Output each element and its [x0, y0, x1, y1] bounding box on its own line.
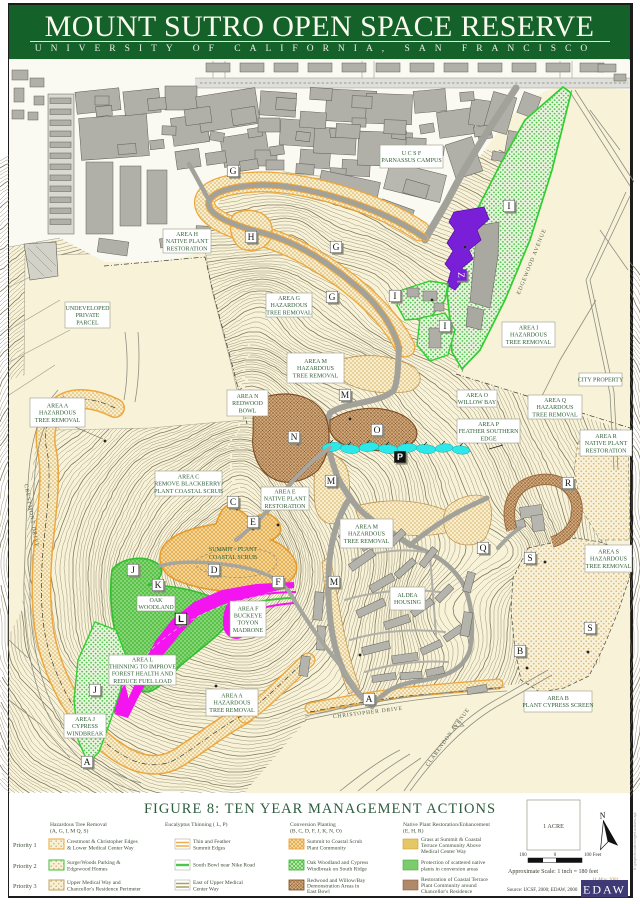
- svg-text:Protection of scattered native: Protection of scattered native: [421, 859, 486, 866]
- svg-text:AREA F: AREA F: [238, 606, 260, 612]
- svg-text:South Bowl near Nike Road: South Bowl near Nike Road: [193, 863, 255, 869]
- svg-text:BUCKEYE: BUCKEYE: [234, 614, 263, 620]
- svg-text:Z: Z: [456, 272, 466, 278]
- svg-text:HAZARDOUS: HAZARDOUS: [39, 411, 76, 417]
- svg-text:Upper Medical Way and: Upper Medical Way and: [67, 880, 121, 886]
- svg-text:HAZARDOUS: HAZARDOUS: [348, 532, 385, 538]
- svg-text:Restoration of Coastal Terrace: Restoration of Coastal Terrace: [421, 876, 488, 883]
- svg-text:Surge/Woods Parking &: Surge/Woods Parking &: [67, 860, 121, 866]
- svg-text:M: M: [327, 477, 336, 487]
- svg-text:(A, G, I, M Q, S): (A, G, I, M Q, S): [50, 828, 89, 835]
- svg-text:COASTAL SCRUB: COASTAL SCRUB: [209, 555, 257, 561]
- svg-text:S: S: [527, 554, 532, 564]
- svg-text:AREA P: AREA P: [478, 422, 500, 428]
- svg-text:Edgewood Homes: Edgewood Homes: [67, 867, 107, 873]
- svg-text:U C S F: U C S F: [402, 151, 422, 157]
- svg-text:AREA L: AREA L: [132, 657, 154, 663]
- svg-text:M: M: [341, 391, 350, 401]
- svg-text:AREA Q: AREA Q: [544, 398, 567, 404]
- svg-text:ALDEA: ALDEA: [397, 593, 418, 599]
- svg-text:REDWOOD: REDWOOD: [232, 401, 263, 407]
- svg-text:HAZARDOUS: HAZARDOUS: [297, 366, 334, 372]
- svg-text:FOREST HEALTH AND: FOREST HEALTH AND: [112, 672, 174, 678]
- svg-text:& Lower Medical Center Way: & Lower Medical Center Way: [67, 846, 134, 852]
- svg-text:N: N: [291, 433, 298, 443]
- svg-text:SUMMIT - PLANT: SUMMIT - PLANT: [209, 547, 258, 553]
- svg-text:Hazardous Tree Removal: Hazardous Tree Removal: [50, 822, 107, 828]
- svg-text:REMOVE BLACKBERRY/: REMOVE BLACKBERRY/: [154, 482, 223, 488]
- svg-text:AREA M: AREA M: [304, 359, 328, 365]
- svg-text:100: 100: [519, 853, 527, 858]
- svg-text:TREE REMOVAL: TREE REMOVAL: [532, 412, 578, 418]
- svg-text:plants in conversion areas: plants in conversion areas: [421, 867, 478, 873]
- svg-text:Plant Community: Plant Community: [307, 846, 346, 852]
- svg-text:Priority 3: Priority 3: [13, 883, 37, 890]
- svg-text:Native Plant Restoration/Enhan: Native Plant Restoration/Enhancement: [403, 822, 490, 828]
- svg-text:HOUSING: HOUSING: [394, 600, 422, 606]
- svg-text:Priority 1: Priority 1: [13, 842, 37, 849]
- svg-text:Thin and Feather: Thin and Feather: [193, 839, 231, 845]
- svg-text:East of Upper Medical: East of Upper Medical: [193, 879, 243, 886]
- svg-text:EDGE: EDGE: [481, 436, 497, 442]
- svg-text:AREA S: AREA S: [598, 549, 619, 555]
- svg-text:S: S: [587, 624, 592, 634]
- svg-text:Crestmont & Christopher Edges: Crestmont & Christopher Edges: [67, 839, 138, 845]
- svg-text:NATIVE PLANT: NATIVE PLANT: [166, 239, 209, 245]
- svg-text:NATIVE PLANT: NATIVE PLANT: [264, 497, 307, 503]
- svg-text:Eucalyptus Thinning ( L, P): Eucalyptus Thinning ( L, P): [165, 821, 228, 828]
- svg-text:Oak Woodland and Cypress: Oak Woodland and Cypress: [307, 860, 368, 866]
- svg-text:I: I: [443, 322, 446, 332]
- svg-text:TREE REMOVAL: TREE REMOVAL: [293, 373, 339, 379]
- svg-text:G: G: [329, 293, 336, 303]
- svg-text:F: F: [275, 578, 280, 588]
- svg-text:Conversion Planting: Conversion Planting: [290, 822, 336, 828]
- svg-text:AREA G: AREA G: [278, 296, 301, 302]
- svg-text:O: O: [374, 426, 381, 436]
- svg-text:OAK: OAK: [150, 598, 164, 604]
- svg-text:AREA I: AREA I: [519, 325, 539, 331]
- svg-text:TOYON: TOYON: [238, 621, 260, 627]
- svg-text:PLANT CYPRESS SCREEN: PLANT CYPRESS SCREEN: [522, 703, 594, 709]
- svg-text:WINDBREAK: WINDBREAK: [67, 731, 104, 737]
- svg-text:100 Feet: 100 Feet: [584, 853, 602, 858]
- svg-text:WILLOW BAY: WILLOW BAY: [458, 400, 497, 406]
- svg-text:AREA A: AREA A: [221, 693, 243, 699]
- svg-text:G: G: [230, 167, 237, 177]
- svg-text:(B, C, D, F, J, K, N, O): (B, C, D, F, J, K, N, O): [290, 828, 342, 835]
- svg-text:D: D: [211, 566, 218, 576]
- svg-text:Approximate Scale: 1 inch = 18: Approximate Scale: 1 inch = 180 feet: [508, 868, 598, 875]
- svg-text:Summit Edges: Summit Edges: [193, 846, 225, 852]
- svg-text:G: G: [333, 243, 340, 253]
- svg-text:WOODLAND: WOODLAND: [138, 605, 174, 611]
- svg-text:PARCEL: PARCEL: [76, 320, 99, 326]
- svg-text:HAZARDOUS: HAZARDOUS: [510, 333, 547, 339]
- svg-text:AREA N: AREA N: [237, 394, 260, 400]
- svg-text:Q: Q: [480, 544, 487, 554]
- svg-text:BOWL: BOWL: [239, 408, 257, 414]
- svg-text:UNDEVELOPED: UNDEVELOPED: [66, 306, 111, 312]
- svg-text:K: K: [155, 581, 162, 591]
- svg-text:J: J: [131, 566, 135, 576]
- svg-text:TREE REMOVAL: TREE REMOVAL: [266, 310, 312, 316]
- svg-text:L: L: [178, 614, 184, 625]
- svg-text:PRIVATE: PRIVATE: [76, 313, 100, 319]
- svg-text:TREE REMOVAL: TREE REMOVAL: [586, 564, 632, 570]
- svg-text:B: B: [517, 647, 523, 657]
- svg-text:EDAW: EDAW: [583, 883, 626, 897]
- svg-text:AREA O: AREA O: [466, 393, 489, 399]
- svg-text:C: C: [230, 498, 236, 508]
- svg-text:R: R: [565, 479, 572, 489]
- svg-text:Chancellor's Residence Perimet: Chancellor's Residence Perimeter: [67, 887, 141, 893]
- svg-text:TREE REMOVAL: TREE REMOVAL: [344, 539, 390, 545]
- svg-text:MADRONE: MADRONE: [233, 628, 264, 634]
- svg-text:HAZARDOUS: HAZARDOUS: [213, 701, 250, 707]
- svg-text:RESTORATION: RESTORATION: [586, 448, 628, 454]
- svg-text:NATIVE PLANT: NATIVE PLANT: [585, 441, 628, 447]
- svg-text:HAZARDOUS: HAZARDOUS: [270, 303, 307, 309]
- svg-text:AREA A: AREA A: [47, 403, 69, 409]
- svg-text:PARNASSUS CAMPUS: PARNASSUS CAMPUS: [381, 158, 441, 164]
- svg-text:Windbreak on South Ridge: Windbreak on South Ridge: [307, 867, 367, 873]
- svg-text:RESTORATION: RESTORATION: [265, 504, 307, 510]
- svg-text:P: P: [397, 452, 403, 462]
- svg-text:REDUCE FUEL LOAD: REDUCE FUEL LOAD: [113, 679, 172, 685]
- svg-text:Priority 2: Priority 2: [13, 863, 37, 870]
- svg-text:Center Way: Center Way: [193, 887, 219, 893]
- svg-text:AREA R: AREA R: [595, 434, 617, 440]
- svg-text:AREA H: AREA H: [176, 232, 199, 238]
- svg-text:E: E: [250, 518, 256, 528]
- svg-text:AREA C: AREA C: [178, 474, 200, 480]
- svg-text:THINNING TO IMPROVE: THINNING TO IMPROVE: [109, 665, 176, 671]
- svg-text:CYPRESS: CYPRESS: [72, 724, 98, 730]
- svg-text:PLANT COASTAL SCRUB: PLANT COASTAL SCRUB: [154, 489, 223, 495]
- svg-text:Medical Center Way: Medical Center Way: [421, 849, 467, 855]
- svg-text:Chancellor's Residence: Chancellor's Residence: [421, 889, 473, 895]
- svg-text:I: I: [507, 202, 510, 212]
- svg-text:A: A: [84, 758, 91, 768]
- svg-text:CITY PROPERTY: CITY PROPERTY: [578, 378, 624, 384]
- svg-text:H: H: [248, 233, 255, 243]
- svg-text:Summit to Coastal Scrub: Summit to Coastal Scrub: [307, 839, 362, 845]
- svg-text:1 ACRE: 1 ACRE: [543, 823, 564, 830]
- svg-text:Source: UCSF, 2000; EDAW, 2000: Source: UCSF, 2000; EDAW, 2000: [507, 888, 578, 893]
- svg-text:RESTORATION: RESTORATION: [167, 246, 209, 252]
- svg-text:TREE REMOVAL: TREE REMOVAL: [209, 708, 255, 714]
- svg-text:AREA M: AREA M: [355, 524, 379, 530]
- svg-text:HAZARDOUS: HAZARDOUS: [590, 557, 627, 563]
- svg-text:FIGURE 8: TEN YEAR MANAGEMENT: FIGURE 8: TEN YEAR MANAGEMENT ACTIONS: [144, 801, 496, 817]
- svg-text:AREA E: AREA E: [274, 489, 296, 495]
- svg-text:J: J: [93, 686, 97, 696]
- svg-text:M: M: [330, 578, 339, 588]
- svg-text:AREA J: AREA J: [75, 717, 96, 723]
- svg-text:AREA B: AREA B: [547, 696, 569, 702]
- svg-text:FEATHER SOUTHERN: FEATHER SOUTHERN: [459, 429, 520, 435]
- svg-text:HAZARDOUS: HAZARDOUS: [536, 405, 573, 411]
- svg-text:I: I: [393, 292, 396, 302]
- svg-text:TREE REMOVAL: TREE REMOVAL: [506, 340, 552, 346]
- svg-text:K:\projects\sutro\mgmt-actions: K:\projects\sutro\mgmt-actions.apr: [633, 811, 637, 870]
- svg-text:East Bowl: East Bowl: [307, 889, 330, 895]
- svg-text:TREE REMOVAL: TREE REMOVAL: [35, 418, 81, 424]
- svg-text:A: A: [366, 695, 373, 705]
- svg-text:(E, H, R): (E, H, R): [403, 828, 424, 835]
